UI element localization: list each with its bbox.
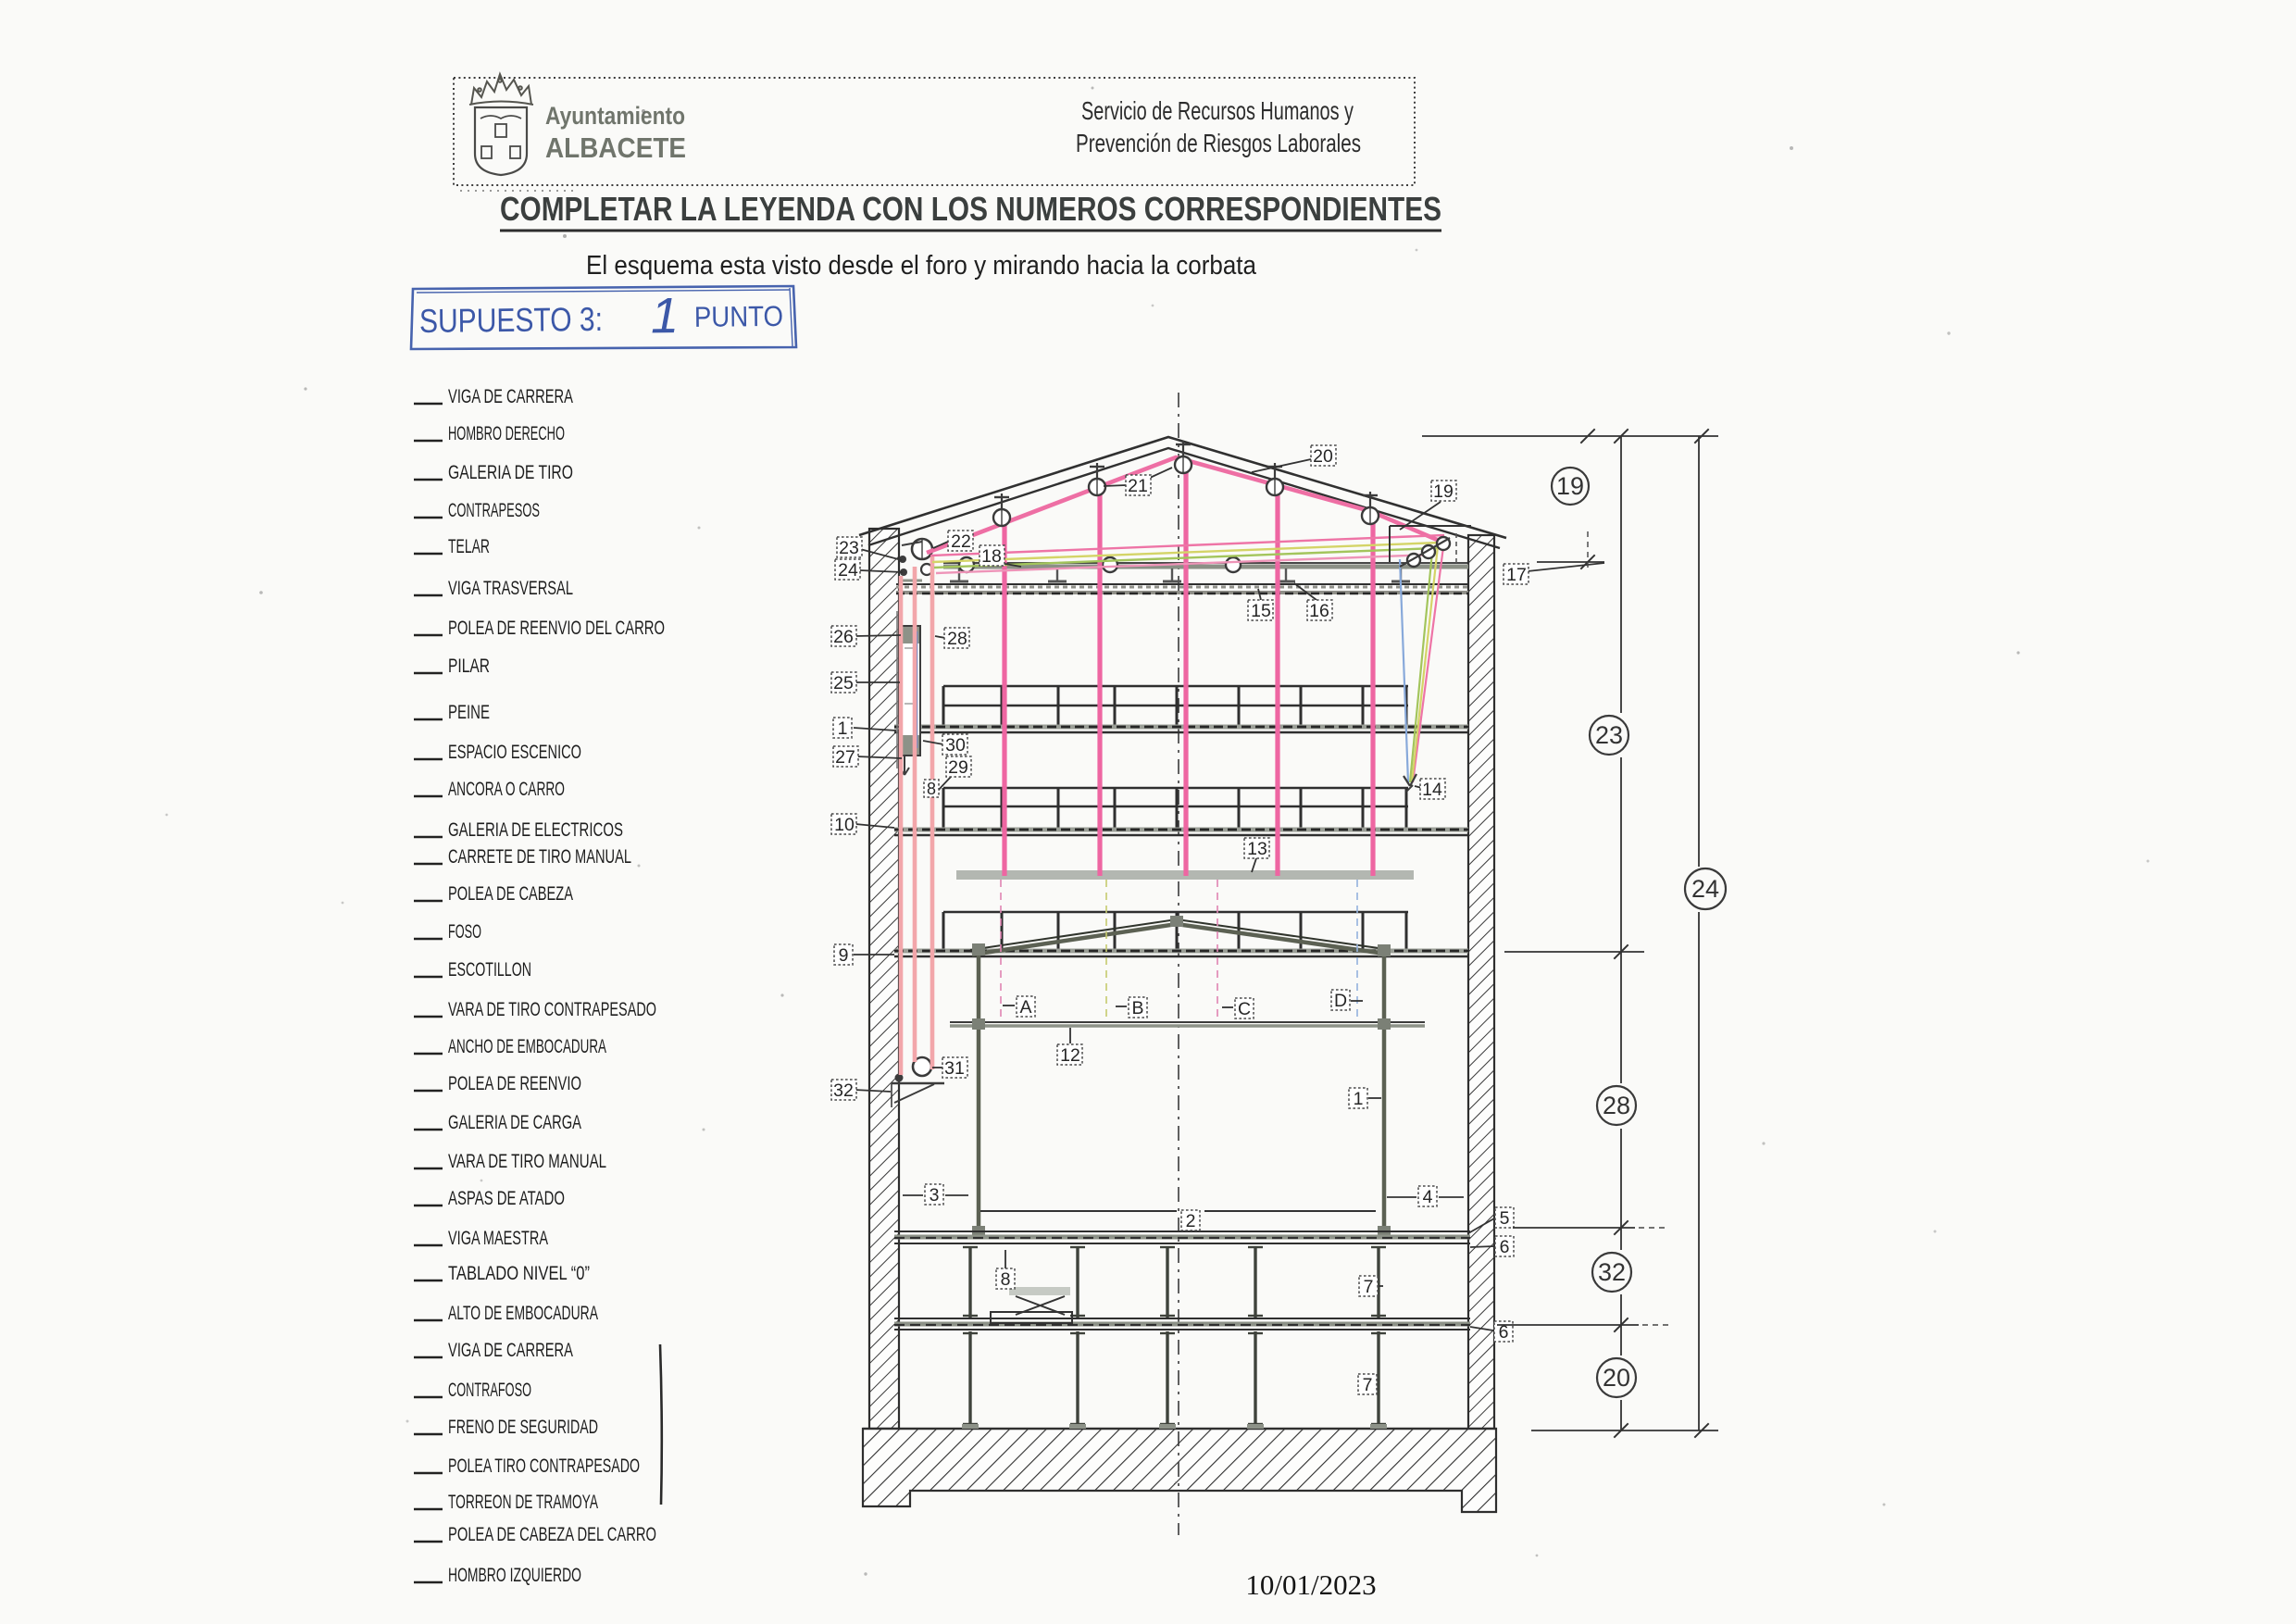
svg-text:VIGA MAESTRA: VIGA MAESTRA — [448, 1227, 548, 1249]
svg-text:POLEA TIRO CONTRAPESADO: POLEA TIRO CONTRAPESADO — [448, 1455, 640, 1477]
svg-text:12: 12 — [1060, 1045, 1080, 1066]
svg-text:Prevención de Riesgos Laborale: Prevención de Riesgos Laborales — [1076, 129, 1361, 157]
svg-text:HOMBRO IZQUIERDO: HOMBRO IZQUIERDO — [448, 1564, 581, 1586]
svg-text:31: 31 — [944, 1058, 965, 1079]
svg-text:CONTRAPESOS: CONTRAPESOS — [448, 499, 540, 521]
svg-text:1: 1 — [651, 288, 680, 344]
svg-text:Ayuntamiento: Ayuntamiento — [545, 102, 685, 130]
svg-text:ALBACETE: ALBACETE — [545, 131, 686, 164]
svg-text:D: D — [1334, 991, 1347, 1011]
svg-text:8: 8 — [927, 780, 936, 798]
svg-text:PEINE: PEINE — [448, 701, 490, 723]
svg-text:POLEA DE REENVIO: POLEA DE REENVIO — [448, 1072, 581, 1094]
svg-text:4: 4 — [1423, 1187, 1433, 1207]
svg-text:CONTRAFOSO: CONTRAFOSO — [448, 1379, 531, 1401]
svg-text:25: 25 — [833, 673, 854, 693]
svg-text:COMPLETAR LA LEYENDA CON LOS N: COMPLETAR LA LEYENDA CON LOS NUMEROS COR… — [500, 190, 1441, 228]
svg-text:Servicio de Recursos Humanos y: Servicio de Recursos Humanos y — [1081, 96, 1354, 125]
svg-text:32: 32 — [1598, 1258, 1626, 1286]
svg-text:TABLADO NIVEL “0”: TABLADO NIVEL “0” — [448, 1262, 590, 1284]
svg-text:15: 15 — [1251, 601, 1271, 621]
svg-text:C: C — [1238, 999, 1251, 1019]
svg-text:VIGA DE CARRERA: VIGA DE CARRERA — [448, 385, 573, 407]
svg-text:ANCORA O CARRO: ANCORA O CARRO — [448, 778, 565, 800]
svg-text:1: 1 — [838, 718, 848, 739]
svg-text:POLEA DE CABEZA DEL CARRO: POLEA DE CABEZA DEL CARRO — [448, 1523, 656, 1545]
svg-text:23: 23 — [1595, 721, 1623, 749]
svg-text:VIGA DE CARRERA: VIGA DE CARRERA — [448, 1339, 573, 1361]
svg-text:GALERIA DE CARGA: GALERIA DE CARGA — [448, 1111, 581, 1133]
svg-text:28: 28 — [1603, 1092, 1630, 1119]
svg-text:FRENO DE SEGURIDAD: FRENO DE SEGURIDAD — [448, 1416, 598, 1438]
svg-text:28: 28 — [947, 629, 967, 649]
svg-text:9: 9 — [839, 945, 849, 966]
svg-text:VIGA TRASVERSAL: VIGA TRASVERSAL — [448, 577, 573, 599]
svg-text:23: 23 — [839, 538, 859, 558]
svg-text:PUNTO: PUNTO — [694, 300, 783, 333]
svg-text:19: 19 — [1556, 472, 1584, 500]
svg-text:ESPACIO ESCENICO: ESPACIO ESCENICO — [448, 741, 581, 763]
svg-text:ESCOTILLON: ESCOTILLON — [448, 958, 531, 981]
svg-text:B: B — [1131, 998, 1143, 1018]
svg-text:17: 17 — [1506, 565, 1527, 585]
svg-text:30: 30 — [945, 735, 966, 756]
svg-text:VARA DE TIRO MANUAL: VARA DE TIRO MANUAL — [448, 1150, 606, 1172]
svg-text:POLEA DE REENVIO DEL CARRO: POLEA DE REENVIO DEL CARRO — [448, 617, 665, 639]
svg-text:SUPUESTO 3:: SUPUESTO 3: — [419, 300, 603, 340]
svg-text:FOSO: FOSO — [448, 920, 481, 943]
svg-text:A: A — [1019, 997, 1031, 1018]
svg-text:22: 22 — [951, 531, 971, 552]
svg-text:27: 27 — [835, 747, 855, 768]
svg-text:El esquema esta visto desde el: El esquema esta visto desde el foro y mi… — [586, 251, 1257, 281]
svg-text:3: 3 — [930, 1185, 940, 1206]
svg-text:PILAR: PILAR — [448, 655, 490, 677]
svg-text:10: 10 — [834, 815, 855, 835]
svg-text:CARRETE DE TIRO MANUAL: CARRETE DE TIRO MANUAL — [448, 845, 631, 868]
svg-text:24: 24 — [1691, 875, 1719, 903]
svg-text:26: 26 — [833, 627, 854, 647]
svg-text:TELAR: TELAR — [448, 535, 490, 557]
svg-text:16: 16 — [1309, 601, 1329, 621]
svg-text:18: 18 — [981, 546, 1002, 567]
svg-text:POLEA DE CABEZA: POLEA DE CABEZA — [448, 882, 573, 905]
svg-text:32: 32 — [833, 1081, 854, 1101]
svg-text:VARA DE TIRO CONTRAPESADO: VARA DE TIRO CONTRAPESADO — [448, 998, 656, 1020]
svg-text:GALERIA DE TIRO: GALERIA DE TIRO — [448, 461, 573, 483]
svg-text:ALTO DE EMBOCADURA: ALTO DE EMBOCADURA — [448, 1302, 598, 1324]
svg-text:20: 20 — [1313, 446, 1333, 467]
svg-text:14: 14 — [1422, 780, 1442, 800]
svg-text:24: 24 — [838, 560, 858, 581]
svg-text:5: 5 — [1500, 1208, 1510, 1229]
svg-text:1: 1 — [1354, 1089, 1364, 1109]
svg-text:29: 29 — [948, 757, 968, 778]
svg-text:20: 20 — [1603, 1364, 1630, 1392]
svg-text:7: 7 — [1364, 1277, 1374, 1297]
svg-text:8: 8 — [1001, 1269, 1011, 1290]
svg-text:ASPAS DE ATADO: ASPAS DE ATADO — [448, 1187, 565, 1209]
svg-text:HOMBRO DERECHO: HOMBRO DERECHO — [448, 422, 565, 444]
svg-text:TORREON DE TRAMOYA: TORREON DE TRAMOYA — [448, 1491, 598, 1513]
svg-text:7: 7 — [1363, 1375, 1373, 1395]
svg-text:13: 13 — [1247, 839, 1267, 859]
svg-text:ANCHO DE EMBOCADURA: ANCHO DE EMBOCADURA — [448, 1035, 606, 1057]
svg-text:6: 6 — [1500, 1237, 1510, 1257]
svg-text:GALERIA DE ELECTRICOS: GALERIA DE ELECTRICOS — [448, 818, 623, 841]
svg-text:21: 21 — [1128, 476, 1148, 496]
svg-text:2: 2 — [1186, 1211, 1196, 1231]
svg-text:10/01/2023: 10/01/2023 — [1245, 1568, 1376, 1601]
svg-text:19: 19 — [1433, 481, 1454, 502]
